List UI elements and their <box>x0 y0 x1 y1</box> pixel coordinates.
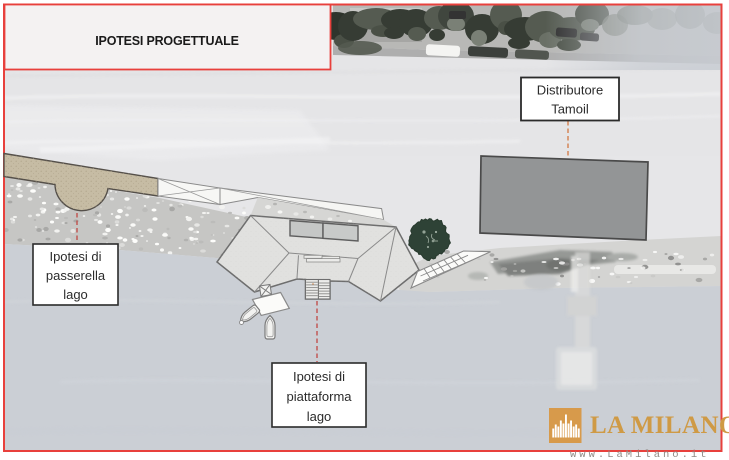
svg-text:Ipotesi di: Ipotesi di <box>49 249 101 264</box>
svg-text:passerella: passerella <box>46 268 106 283</box>
svg-text:IPOTESI PROGETTUALE: IPOTESI PROGETTUALE <box>95 34 238 48</box>
svg-text:Ipotesi di: Ipotesi di <box>293 369 345 384</box>
svg-text:Tamoil: Tamoil <box>551 102 589 117</box>
svg-text:LA MILANO: LA MILANO <box>590 412 729 439</box>
svg-text:lago: lago <box>307 409 332 424</box>
svg-text:lago: lago <box>63 287 88 302</box>
svg-text:Distributore: Distributore <box>537 83 603 98</box>
svg-text:piattaforma: piattaforma <box>286 389 352 404</box>
svg-text:www.LaMilano.it: www.LaMilano.it <box>570 449 710 460</box>
